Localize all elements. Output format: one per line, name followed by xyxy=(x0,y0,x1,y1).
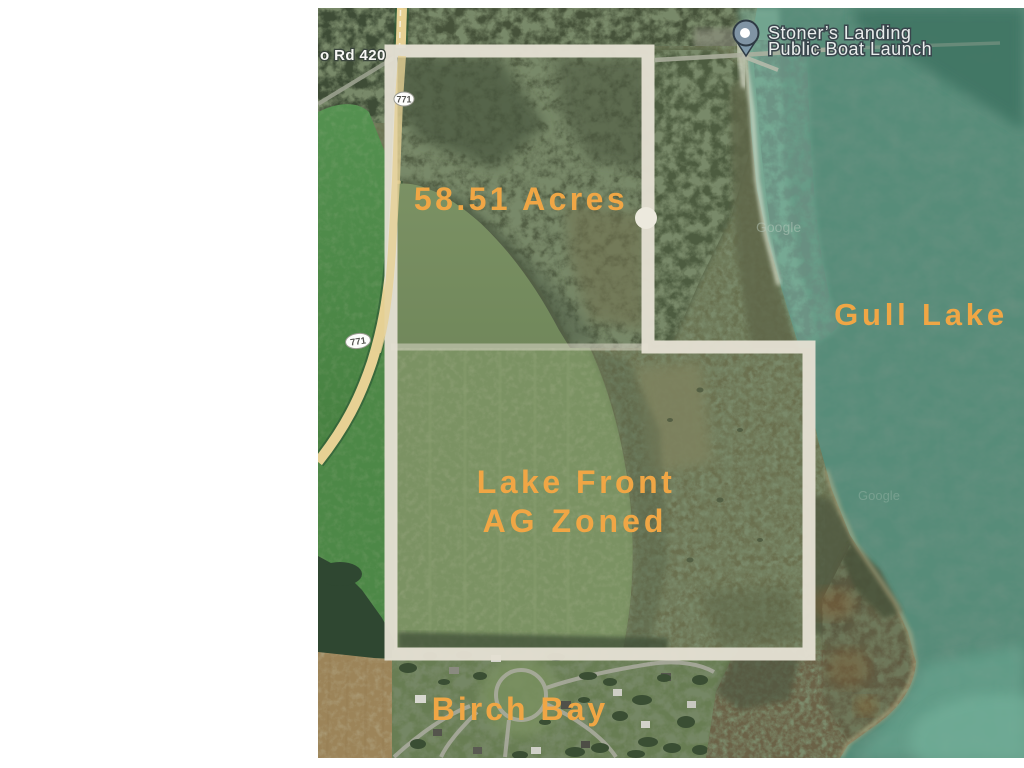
svg-text:Birch Bay: Birch Bay xyxy=(432,691,608,727)
svg-text:AG Zoned: AG Zoned xyxy=(483,503,668,539)
svg-text:771: 771 xyxy=(350,335,368,348)
svg-text:771: 771 xyxy=(396,95,411,105)
svg-text:Gull Lake: Gull Lake xyxy=(834,297,1008,332)
svg-text:Public Boat Launch: Public Boat Launch xyxy=(768,39,932,59)
svg-text:58.51 Acres: 58.51 Acres xyxy=(414,181,628,217)
svg-text:Google: Google xyxy=(858,488,900,503)
svg-text:Google: Google xyxy=(756,219,801,235)
svg-text:o Rd 420: o Rd 420 xyxy=(320,47,386,64)
svg-text:Lake Front: Lake Front xyxy=(477,464,676,500)
